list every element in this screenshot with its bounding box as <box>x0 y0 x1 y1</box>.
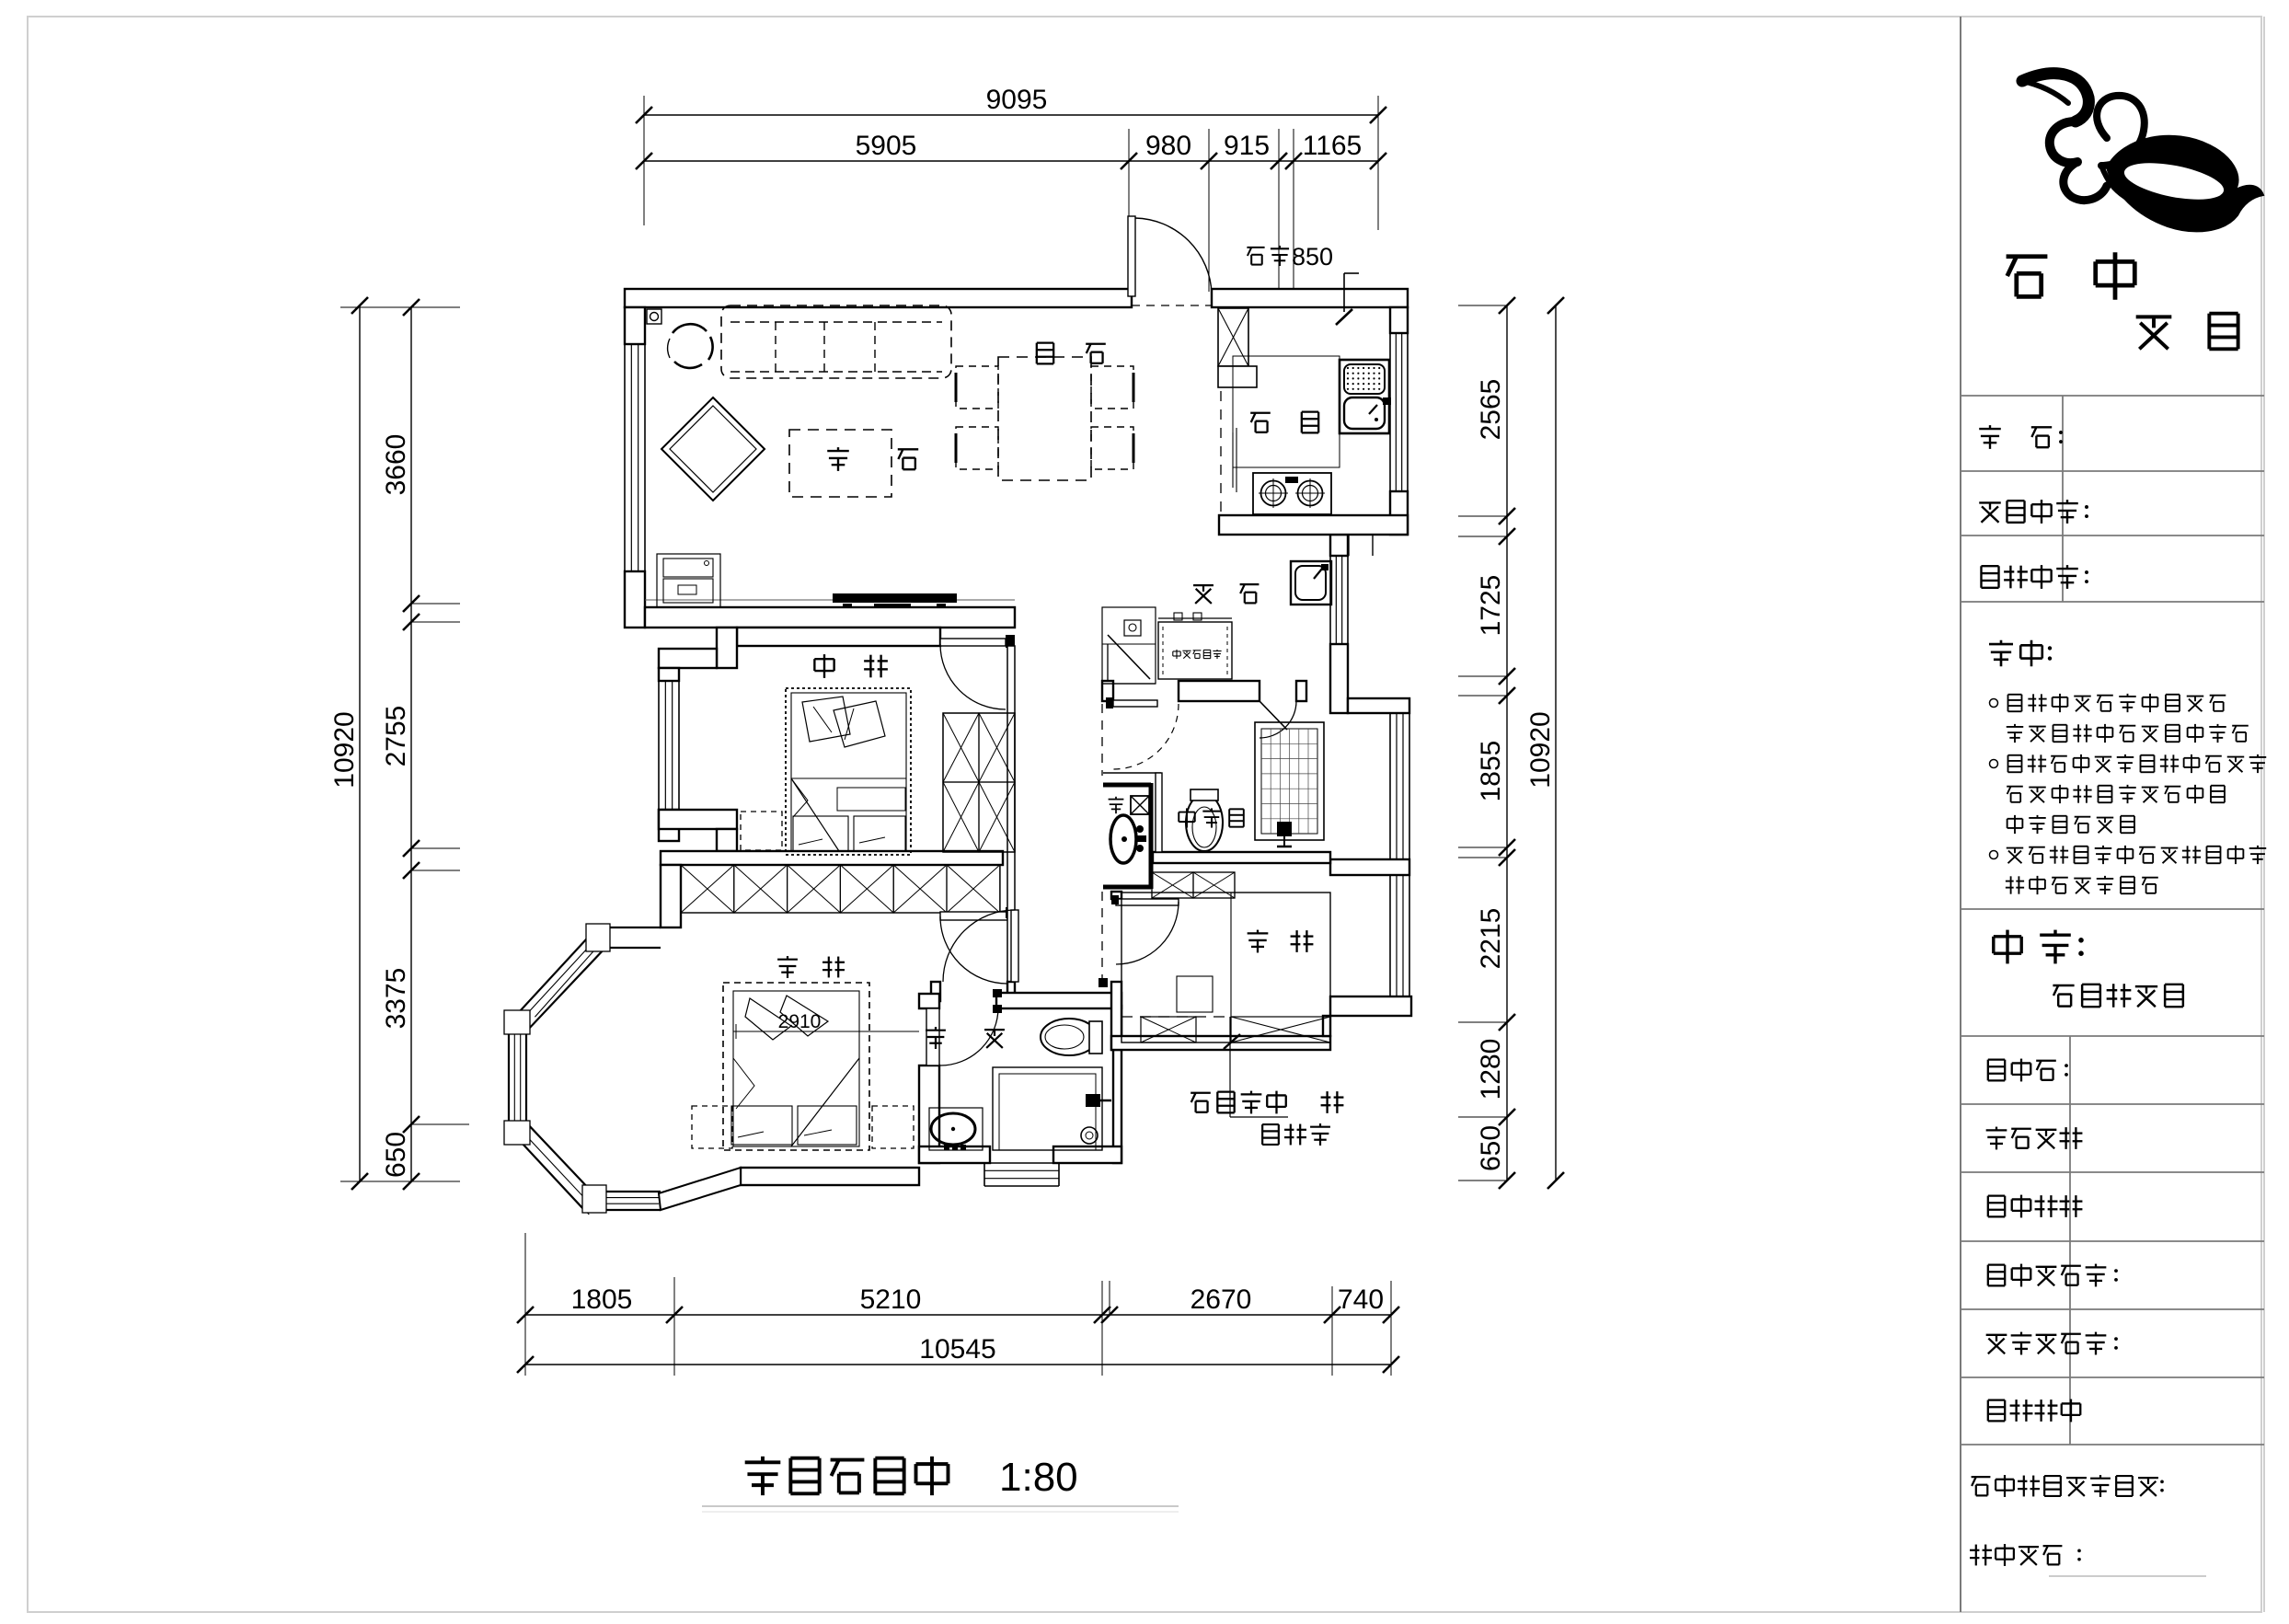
svg-text:1725: 1725 <box>1476 575 1506 637</box>
svg-text:1165: 1165 <box>1303 131 1363 161</box>
svg-text:2755: 2755 <box>381 706 411 767</box>
svg-text:2670: 2670 <box>1191 1284 1252 1315</box>
svg-text:1855: 1855 <box>1476 741 1506 802</box>
svg-text:1:80: 1:80 <box>999 1455 1078 1500</box>
svg-text:740: 740 <box>1338 1284 1384 1315</box>
svg-text:5210: 5210 <box>860 1284 922 1315</box>
svg-text:3660: 3660 <box>381 434 411 496</box>
svg-text:2565: 2565 <box>1476 379 1506 441</box>
svg-text:10920: 10920 <box>1525 711 1556 788</box>
svg-text:5905: 5905 <box>856 131 917 161</box>
svg-text:3375: 3375 <box>381 968 411 1030</box>
svg-text:9095: 9095 <box>986 85 1048 115</box>
svg-text:10545: 10545 <box>919 1334 995 1365</box>
svg-text:1280: 1280 <box>1476 1039 1506 1100</box>
svg-text:650: 650 <box>381 1132 411 1178</box>
svg-text:10920: 10920 <box>329 711 360 788</box>
svg-text:980: 980 <box>1145 131 1191 161</box>
svg-text:2910: 2910 <box>778 1011 822 1032</box>
svg-text:650: 650 <box>1476 1125 1506 1171</box>
svg-text:915: 915 <box>1224 131 1270 161</box>
svg-text:850: 850 <box>1292 243 1333 271</box>
svg-text:1805: 1805 <box>571 1284 633 1315</box>
svg-text:2215: 2215 <box>1476 908 1506 970</box>
